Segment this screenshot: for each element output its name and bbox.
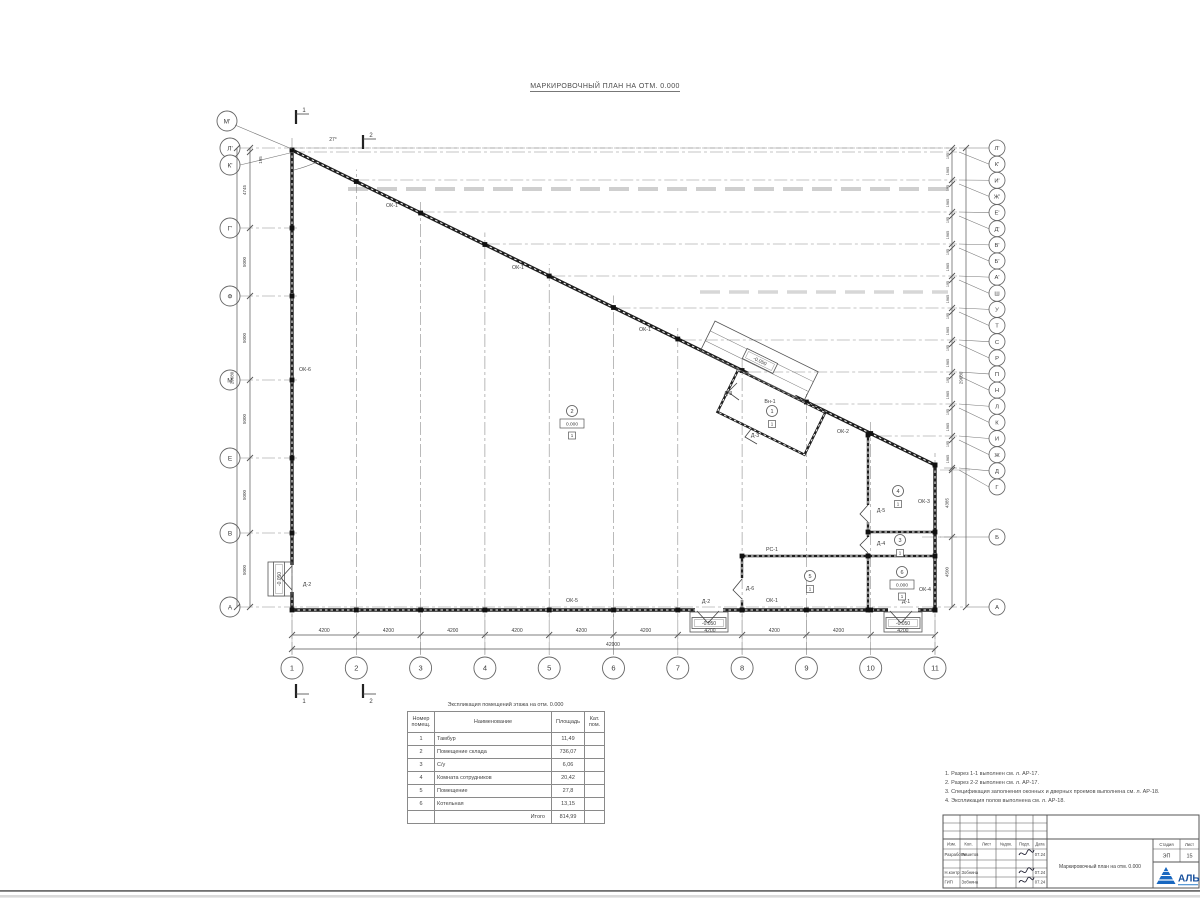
section-mark-label: 2 bbox=[369, 133, 373, 139]
section-mark-label: 2 bbox=[369, 699, 373, 705]
column-marker bbox=[740, 554, 745, 559]
room-row: 3С/у6,06 bbox=[408, 759, 605, 772]
axis-leader bbox=[959, 276, 989, 277]
stage-value: ЭП bbox=[1163, 854, 1171, 860]
axis-label: Ж' bbox=[994, 195, 1000, 201]
axis-label: Г' bbox=[228, 225, 233, 232]
dimension-label: 1965 bbox=[946, 231, 950, 239]
axis-leader bbox=[959, 212, 989, 213]
title-block-header: Изм. bbox=[947, 842, 956, 847]
axis-label: 4 bbox=[483, 664, 487, 673]
section-mark-label: 1 bbox=[302, 108, 306, 114]
element-label: ОК-3 bbox=[918, 499, 930, 505]
axis-leader bbox=[959, 248, 989, 261]
dimension-label: 29680 bbox=[959, 371, 964, 384]
room-cell: 5 bbox=[408, 785, 435, 798]
axis-label: Е' bbox=[995, 211, 1000, 217]
room-row: 4Комната сотрудников20,42 bbox=[408, 772, 605, 785]
note-line: 4. Экспликация полов выполнена см. л. АР… bbox=[945, 797, 1200, 806]
dimension-label: 5000 bbox=[242, 564, 247, 575]
column-marker bbox=[804, 608, 809, 613]
axis-leader bbox=[959, 376, 989, 390]
axis-label: Л' bbox=[227, 145, 233, 152]
room-level: 0.000 bbox=[566, 422, 578, 428]
axis-label: А bbox=[995, 605, 999, 611]
note-line: 3. Спецификация заполнения оконных и две… bbox=[945, 788, 1200, 797]
room-number: 4 bbox=[896, 489, 899, 495]
element-label: Д-4 bbox=[877, 541, 885, 547]
axis-label: В bbox=[228, 530, 232, 537]
title-block-date: 07.24 bbox=[1035, 880, 1046, 885]
column-marker bbox=[547, 608, 552, 613]
axis-label: И bbox=[995, 437, 999, 443]
angle-arc bbox=[294, 162, 317, 170]
axis-label: К' bbox=[995, 162, 999, 168]
column-marker bbox=[290, 226, 295, 231]
axis-label: Ф bbox=[228, 293, 233, 300]
element-label: Д-2 bbox=[303, 582, 311, 588]
axis-leader bbox=[959, 372, 989, 374]
dimension-label: 195 bbox=[946, 313, 950, 319]
room-cell bbox=[585, 785, 605, 798]
column-marker bbox=[547, 274, 552, 279]
axis-label: С bbox=[995, 340, 999, 346]
axis-label: 2 bbox=[354, 664, 358, 673]
axis-label: Б bbox=[995, 535, 999, 541]
axis-label: 3 bbox=[419, 664, 423, 673]
axis-label: 11 bbox=[931, 664, 939, 673]
dimension-label: 4200 bbox=[897, 628, 908, 634]
column-marker bbox=[418, 608, 423, 613]
axis-label: А' bbox=[995, 275, 1000, 281]
room-tag: 60.0001 bbox=[890, 567, 914, 601]
dimension-label: 1965 bbox=[946, 423, 950, 431]
room-cell: Котельная bbox=[435, 798, 552, 811]
axis-label: У bbox=[995, 308, 999, 314]
dimension-label: 1965 bbox=[946, 199, 950, 207]
axis-leader bbox=[959, 436, 989, 439]
dimension-label: 195 bbox=[946, 249, 950, 255]
level-mark: -0.050 bbox=[692, 618, 726, 629]
room-cell: 13,15 bbox=[552, 798, 585, 811]
level-mark: -0.050 bbox=[886, 618, 920, 629]
dimension-label: 4385 bbox=[945, 497, 950, 508]
room-row: 1Тамбур11,49 bbox=[408, 733, 605, 746]
total-value: 814,99 bbox=[552, 811, 585, 824]
axis-leader bbox=[959, 184, 989, 196]
drawing-title-text: МАРКИРОВОЧНЫЙ ПЛАН НА ОТМ. 0.000 bbox=[530, 83, 680, 92]
element-label: Вн-1 bbox=[764, 399, 775, 405]
column-marker bbox=[675, 608, 680, 613]
axis-label: Н bbox=[995, 388, 999, 394]
axis-label: 9 bbox=[804, 664, 808, 673]
axis-label: Л bbox=[995, 404, 999, 410]
door-swing bbox=[860, 505, 868, 522]
title-block-name: Решетов bbox=[962, 852, 980, 857]
dimension-label: 1965 bbox=[946, 359, 950, 367]
note-line: 2. Разрез 2-2 выполнен см. л. АР-17. bbox=[945, 779, 1200, 788]
element-label: Д-3 bbox=[724, 391, 732, 397]
axis-label: П bbox=[995, 372, 999, 378]
dimension-label: 195 bbox=[258, 156, 263, 164]
element-label: ОК-1 bbox=[766, 598, 778, 604]
room-level: 0.000 bbox=[896, 583, 908, 589]
dimension-label: 5000 bbox=[242, 413, 247, 424]
drawing-sheet: -0.050-0.050-0.050-0.0504200420042004200… bbox=[0, 0, 1200, 900]
title-block-header: №док. bbox=[1000, 842, 1012, 847]
title-block-header: Кол. bbox=[964, 842, 972, 847]
title-block-name: Зобнина bbox=[962, 880, 979, 885]
dimension-label: 4200 bbox=[769, 628, 780, 634]
element-label: Д-5 bbox=[877, 508, 885, 514]
dimension-label: 4200 bbox=[383, 628, 394, 634]
section-mark-label: 1 bbox=[302, 699, 306, 705]
room-number: 6 bbox=[900, 570, 903, 576]
notes-block: 1. Разрез 1-1 выполнен см. л. АР-17. 2. … bbox=[945, 770, 1200, 806]
column-marker bbox=[611, 305, 616, 310]
axis-label: 8 bbox=[740, 664, 744, 673]
axis-label: Л' bbox=[995, 146, 1000, 152]
column-marker bbox=[740, 608, 745, 613]
column-marker bbox=[290, 456, 295, 461]
ramp-line bbox=[705, 341, 808, 392]
room-cell: 27,8 bbox=[552, 785, 585, 798]
axis-label: 5 bbox=[547, 664, 551, 673]
room-tag: 31 bbox=[895, 535, 906, 557]
room-row: 6Котельная13,15 bbox=[408, 798, 605, 811]
room-number: 3 bbox=[898, 538, 901, 544]
axis-label: Д bbox=[995, 469, 999, 475]
dimension-label: 195 bbox=[946, 345, 950, 351]
column-marker bbox=[866, 433, 871, 438]
dimension-label: 195 bbox=[946, 441, 950, 447]
element-label: ОК-2 bbox=[837, 429, 849, 435]
level-mark: -0.050 bbox=[274, 562, 285, 596]
dimension-label: 1965 bbox=[946, 391, 950, 399]
axis-label: Р bbox=[995, 356, 999, 362]
dimension-label: 1965 bbox=[946, 167, 950, 175]
room-cell bbox=[585, 733, 605, 746]
column-marker bbox=[290, 531, 295, 536]
room-cell: 11,49 bbox=[552, 733, 585, 746]
column-marker bbox=[866, 608, 871, 613]
column-marker bbox=[866, 554, 871, 559]
sheet-value: 15 bbox=[1186, 854, 1192, 860]
title-block-date: 07.24 bbox=[1035, 852, 1046, 857]
axis-label: М' bbox=[224, 118, 231, 125]
axis-leader bbox=[959, 216, 989, 229]
title-block-date: 07.24 bbox=[1035, 870, 1046, 875]
sheet-label: Лист bbox=[1185, 842, 1194, 847]
column-marker bbox=[290, 294, 295, 299]
entrance-ramp: -0.050 bbox=[700, 321, 818, 401]
title-block-header: Дата bbox=[1035, 842, 1045, 847]
axis-leader bbox=[959, 152, 989, 164]
dimension-label: 4745 bbox=[242, 184, 247, 195]
dimension-label: 4200 bbox=[511, 628, 522, 634]
dimension-label: 42000 bbox=[606, 642, 620, 648]
col-header-name: Наименование bbox=[435, 712, 552, 733]
column-marker bbox=[933, 554, 938, 559]
axis-leader bbox=[959, 340, 989, 342]
room-tag: 11 bbox=[767, 406, 778, 428]
axis-label: В' bbox=[995, 243, 1000, 249]
col-header-area: Площадь bbox=[552, 712, 585, 733]
column-marker bbox=[418, 211, 423, 216]
logo-subtext bbox=[1178, 884, 1198, 885]
dimension-label: 195 bbox=[946, 153, 950, 159]
dimension-label: 5000 bbox=[242, 256, 247, 267]
element-label: ОК-6 bbox=[299, 367, 311, 373]
sheet-frame-line bbox=[0, 890, 1200, 892]
total-label: Итого bbox=[435, 811, 552, 824]
column-marker bbox=[290, 608, 295, 613]
total-category-cell bbox=[585, 811, 605, 824]
element-label: РС-1 bbox=[766, 547, 778, 553]
dimension-label: 195 bbox=[946, 217, 950, 223]
room-schedule-table: Номер помещ. Наименование Площадь Кат. п… bbox=[407, 711, 605, 824]
drawing-title: МАРКИРОВОЧНЫЙ ПЛАН НА ОТМ. 0.000 bbox=[430, 83, 780, 90]
axis-leader bbox=[235, 125, 292, 149]
total-empty-cell bbox=[408, 811, 435, 824]
angle-label: 27° bbox=[329, 137, 337, 143]
axis-leader bbox=[959, 244, 989, 245]
dimension-label: 5000 bbox=[242, 332, 247, 343]
dimension-label: 4200 bbox=[576, 628, 587, 634]
room-cell: Помещение bbox=[435, 785, 552, 798]
column-marker bbox=[933, 608, 938, 613]
room-number: 5 bbox=[808, 574, 811, 580]
axis-leader bbox=[959, 468, 989, 471]
axis-label: Б' bbox=[995, 259, 1000, 265]
room-cell bbox=[585, 746, 605, 759]
dimension-label: 195 bbox=[946, 377, 950, 383]
column-marker bbox=[354, 179, 359, 184]
room-cell: Тамбур bbox=[435, 733, 552, 746]
title-block: Изм.Кол.Лист№док.Подп.ДатаРазработалРеше… bbox=[943, 815, 1200, 888]
axis-leader bbox=[959, 308, 989, 309]
dimension-label: 195 bbox=[946, 185, 950, 191]
axis-label: 1 bbox=[290, 664, 294, 673]
element-label: ОК-4 bbox=[919, 587, 931, 593]
dimension-label: 5000 bbox=[242, 489, 247, 500]
room-cell: 4 bbox=[408, 772, 435, 785]
column-marker bbox=[483, 242, 488, 247]
dimension-label: 1965 bbox=[946, 295, 950, 303]
axis-label: И' bbox=[994, 178, 999, 184]
room-cell: 6,06 bbox=[552, 759, 585, 772]
title-block-name: Зобнина bbox=[962, 870, 979, 875]
axis-label: К' bbox=[227, 162, 232, 169]
axis-leader bbox=[959, 280, 989, 293]
dimension-label: 4200 bbox=[704, 628, 715, 634]
element-label: ОК-1 bbox=[512, 265, 524, 271]
level-value: -0.050 bbox=[896, 621, 910, 627]
dimension-label: 4500 bbox=[945, 566, 950, 577]
stage-label: Стадия bbox=[1159, 842, 1173, 847]
axis-label: Д' bbox=[994, 227, 999, 233]
element-label: Д-2 bbox=[702, 599, 710, 605]
axis-leader bbox=[959, 408, 989, 422]
level-mark: -0.050 bbox=[742, 349, 777, 374]
element-label: ОК-5 bbox=[566, 598, 578, 604]
room-cell: 2 bbox=[408, 746, 435, 759]
room-cell: 1 bbox=[408, 733, 435, 746]
room-cell bbox=[585, 798, 605, 811]
dimension-label: 195 bbox=[946, 409, 950, 415]
sheet-frame-shadow bbox=[0, 895, 1200, 898]
doc-title: Маркировочный план на отм. 0.000 bbox=[1059, 863, 1141, 870]
title-block-role: Н.контр bbox=[945, 870, 961, 875]
title-block-header: Лист bbox=[982, 842, 991, 847]
axis-label: А bbox=[228, 604, 233, 611]
dimension-label: 1965 bbox=[946, 327, 950, 335]
dimension-label: 4200 bbox=[447, 628, 458, 634]
door-swing bbox=[860, 537, 868, 553]
axis-label: Е bbox=[228, 455, 233, 462]
element-label: Д-3 bbox=[751, 433, 759, 439]
column-marker bbox=[933, 530, 938, 535]
dimension-label: 1965 bbox=[946, 455, 950, 463]
note-line: 1. Разрез 1-1 выполнен см. л. АР-17. bbox=[945, 770, 1200, 779]
axis-leader bbox=[959, 404, 989, 406]
col-header-number: Номер помещ. bbox=[408, 712, 435, 733]
axis-leader bbox=[959, 440, 989, 455]
logo-text: АЛЬ bbox=[1178, 874, 1200, 885]
axis-leader bbox=[959, 344, 989, 358]
dimension-label: 29680 bbox=[230, 371, 235, 384]
room-number: 2 bbox=[570, 409, 573, 415]
column-marker bbox=[611, 608, 616, 613]
room-tag: 20.0001 bbox=[560, 406, 584, 440]
room-cell: 736,07 bbox=[552, 746, 585, 759]
room-cell: С/у bbox=[435, 759, 552, 772]
room-schedule: Экспликация помещений этажа на отм. 0.00… bbox=[407, 702, 604, 824]
column-marker bbox=[866, 530, 871, 535]
room-cell: Комната сотрудников bbox=[435, 772, 552, 785]
col-header-category: Кат. пом. bbox=[585, 712, 605, 733]
room-row: 5Помещение27,8 bbox=[408, 785, 605, 798]
room-cell: Помещение склада bbox=[435, 746, 552, 759]
title-block-header: Подп. bbox=[1019, 842, 1030, 847]
dimension-label: 4200 bbox=[640, 628, 651, 634]
room-cell: 3 bbox=[408, 759, 435, 772]
axis-label: Ш bbox=[994, 291, 999, 297]
dimension-label: 1965 bbox=[946, 263, 950, 271]
axis-label: Т bbox=[995, 324, 999, 330]
element-label: Д-6 bbox=[746, 586, 754, 592]
element-label: ОК-1 bbox=[386, 203, 398, 209]
dimension-label: 195 bbox=[946, 281, 950, 287]
door-swing bbox=[733, 579, 742, 599]
title-block-role: ГИП bbox=[945, 880, 953, 885]
axis-label: 7 bbox=[676, 664, 680, 673]
column-marker bbox=[483, 608, 488, 613]
dimension-label: 4200 bbox=[833, 628, 844, 634]
room-schedule-title: Экспликация помещений этажа на отм. 0.00… bbox=[407, 702, 604, 708]
room-cell bbox=[585, 772, 605, 785]
axis-leader bbox=[959, 312, 989, 326]
room-tag: 41 bbox=[893, 486, 904, 508]
column-marker bbox=[354, 608, 359, 613]
room-cell: 6 bbox=[408, 798, 435, 811]
room-number: 1 bbox=[770, 409, 773, 415]
column-marker bbox=[933, 463, 938, 468]
axis-label: 6 bbox=[611, 664, 615, 673]
room-cell bbox=[585, 759, 605, 772]
column-marker bbox=[675, 337, 680, 342]
dimension-label: 4200 bbox=[319, 628, 330, 634]
room-row: 2Помещение склада736,07 bbox=[408, 746, 605, 759]
room-cell: 20,42 bbox=[552, 772, 585, 785]
axis-label: Ж bbox=[994, 453, 1000, 459]
column-marker bbox=[290, 378, 295, 383]
axis-leader bbox=[959, 470, 989, 487]
element-label: ОК-1 bbox=[639, 327, 651, 333]
axis-label: 10 bbox=[867, 664, 875, 673]
